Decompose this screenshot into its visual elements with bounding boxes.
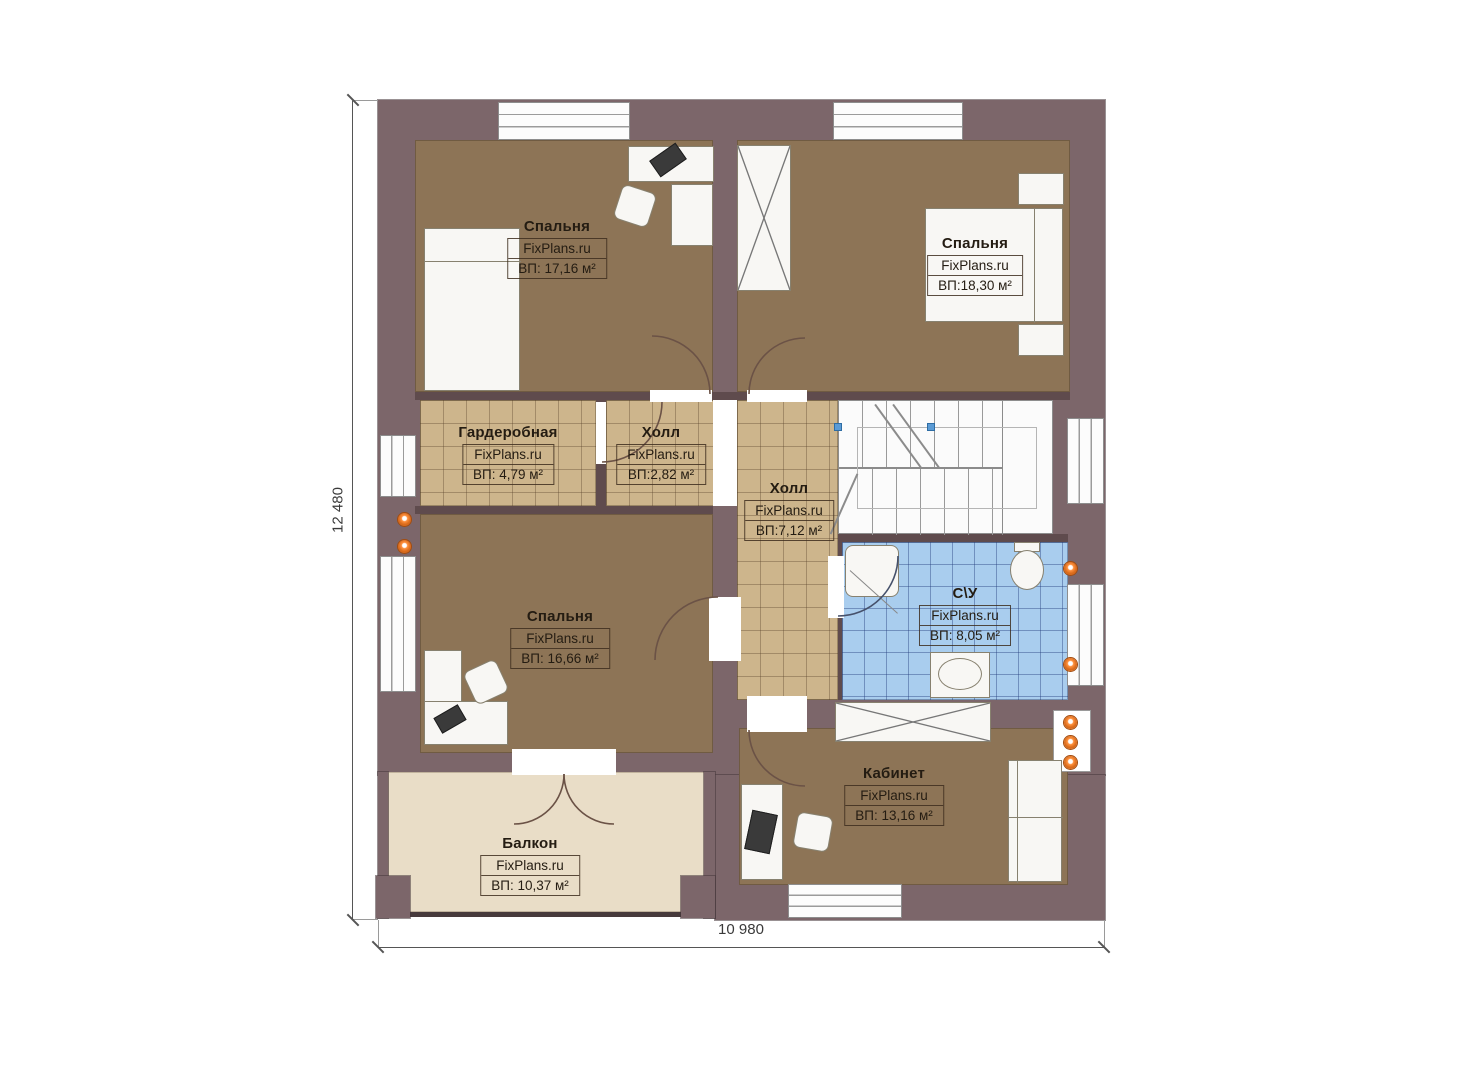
room-name: Спальня (510, 608, 610, 625)
room-name: Гардеробная (458, 424, 557, 441)
stairs-marker-dot-2 (927, 423, 935, 431)
area-text: ВП:18,30 м² (928, 275, 1022, 295)
shower-symbol (845, 545, 899, 597)
room-name: Холл (616, 424, 706, 441)
room-label-bedroom-bottom-left: Спальня FixPlans.ruВП: 16,66 м² (510, 608, 610, 669)
wardrobe-symbol (835, 702, 991, 742)
radiator-dot (1064, 658, 1077, 671)
brand-text: FixPlans.ru (845, 786, 943, 805)
brand-text: FixPlans.ru (463, 445, 553, 464)
dimension-line-vertical (352, 100, 353, 920)
bed-pillow-line (1034, 209, 1035, 323)
door-gap-office (747, 696, 807, 732)
brand-text: FixPlans.ru (617, 445, 705, 464)
dimension-tick (347, 914, 360, 927)
window-symbol-left-1 (380, 435, 416, 497)
door-gap-bedroom-top-right (747, 390, 807, 402)
room-label-hall-main: Холл FixPlans.ruВП:7,12 м² (744, 480, 834, 541)
area-text: ВП: 16,66 м² (511, 648, 609, 668)
door-gap-wardrobe (596, 402, 606, 464)
brand-text: FixPlans.ru (928, 256, 1022, 275)
window-symbol-right-1 (1067, 418, 1104, 504)
dimension-extension (378, 920, 379, 947)
balcony-edge (378, 912, 715, 917)
single-bed-symbol (424, 228, 520, 391)
dimension-extension (352, 919, 378, 920)
room-name: Холл (744, 480, 834, 497)
room-label-balcony: Балкон FixPlans.ruВП: 10,37 м² (480, 835, 580, 896)
room-label-hall-small: Холл FixPlans.ruВП:2,82 м² (616, 424, 706, 485)
room-label-bathroom: С\У FixPlans.ruВП: 8,05 м² (919, 585, 1011, 646)
door-gap-bedroom-bottom-left (709, 597, 741, 661)
dimension-extension (1104, 920, 1105, 947)
window-symbol-top-2 (833, 102, 963, 140)
radiator-dot (1064, 756, 1077, 769)
desk-symbol-side (671, 184, 713, 246)
room-name: С\У (919, 585, 1011, 602)
area-text: ВП: 13,16 м² (845, 805, 943, 825)
brand-text: FixPlans.ru (511, 629, 609, 648)
area-text: ВП: 8,05 м² (920, 625, 1010, 645)
balcony-corner-stub-right (681, 876, 715, 918)
partition-stairs-bathroom (832, 534, 1068, 542)
balcony-corner-stub-left (376, 876, 410, 918)
sink-symbol (938, 658, 982, 690)
brand-text: FixPlans.ru (745, 501, 833, 520)
area-text: ВП:2,82 м² (617, 464, 705, 484)
area-text: ВП: 17,16 м² (508, 258, 606, 278)
radiator-dot (1064, 562, 1077, 575)
area-text: ВП: 10,37 м² (481, 875, 579, 895)
window-symbol-left-2 (380, 556, 416, 692)
brand-text: FixPlans.ru (481, 856, 579, 875)
sofa-symbol (1008, 760, 1062, 882)
floor-plan-canvas: Спальня FixPlans.ruВП: 17,16 м² Спальня … (0, 0, 1474, 1080)
area-text: ВП: 4,79 м² (463, 464, 553, 484)
stairs-marker-dot (834, 423, 842, 431)
nightstand-symbol (1018, 173, 1064, 205)
radiator-dot (1064, 736, 1077, 749)
window-symbol-bottom (788, 884, 902, 918)
room-name: Кабинет (844, 765, 944, 782)
toilet-symbol (1010, 550, 1044, 590)
nightstand-symbol (1018, 324, 1064, 356)
room-name: Спальня (507, 218, 607, 235)
stairs-guide-line (857, 427, 1037, 509)
window-symbol-top-1 (498, 102, 630, 140)
radiator-dot (398, 540, 411, 553)
brand-text: FixPlans.ru (920, 606, 1010, 625)
door-gap-balcony-french (512, 749, 616, 775)
stairs-symbol (838, 400, 1053, 534)
area-text: ВП:7,12 м² (745, 520, 833, 540)
room-label-office: Кабинет FixPlans.ruВП: 13,16 м² (844, 765, 944, 826)
door-gap-bedroom-top-left (650, 390, 712, 402)
brand-text: FixPlans.ru (508, 239, 606, 258)
window-symbol-right-2 (1067, 584, 1104, 686)
office-chair-symbol (792, 811, 834, 853)
wardrobe-symbol (737, 145, 791, 291)
hall-main-floor (737, 400, 838, 700)
sofa-back-line (1017, 761, 1018, 883)
room-label-wardrobe: Гардеробная FixPlans.ruВП: 4,79 м² (458, 424, 557, 485)
room-name: Спальня (927, 235, 1023, 252)
room-label-bedroom-top-right: Спальня FixPlans.ruВП:18,30 м² (927, 235, 1023, 296)
radiator-dot (1064, 716, 1077, 729)
hall-threshold (713, 400, 739, 506)
dimension-width-label: 10 980 (718, 921, 764, 938)
partition-under-wardrobe (415, 506, 713, 514)
room-name: Балкон (480, 835, 580, 852)
radiator-dot (398, 513, 411, 526)
door-gap-bathroom (828, 556, 844, 618)
dimension-line-horizontal (378, 947, 1105, 948)
partition-under-top-rooms (415, 392, 1070, 400)
dimension-height-label: 12 480 (330, 487, 347, 533)
room-label-bedroom-top-left: Спальня FixPlans.ruВП: 17,16 м² (507, 218, 607, 279)
